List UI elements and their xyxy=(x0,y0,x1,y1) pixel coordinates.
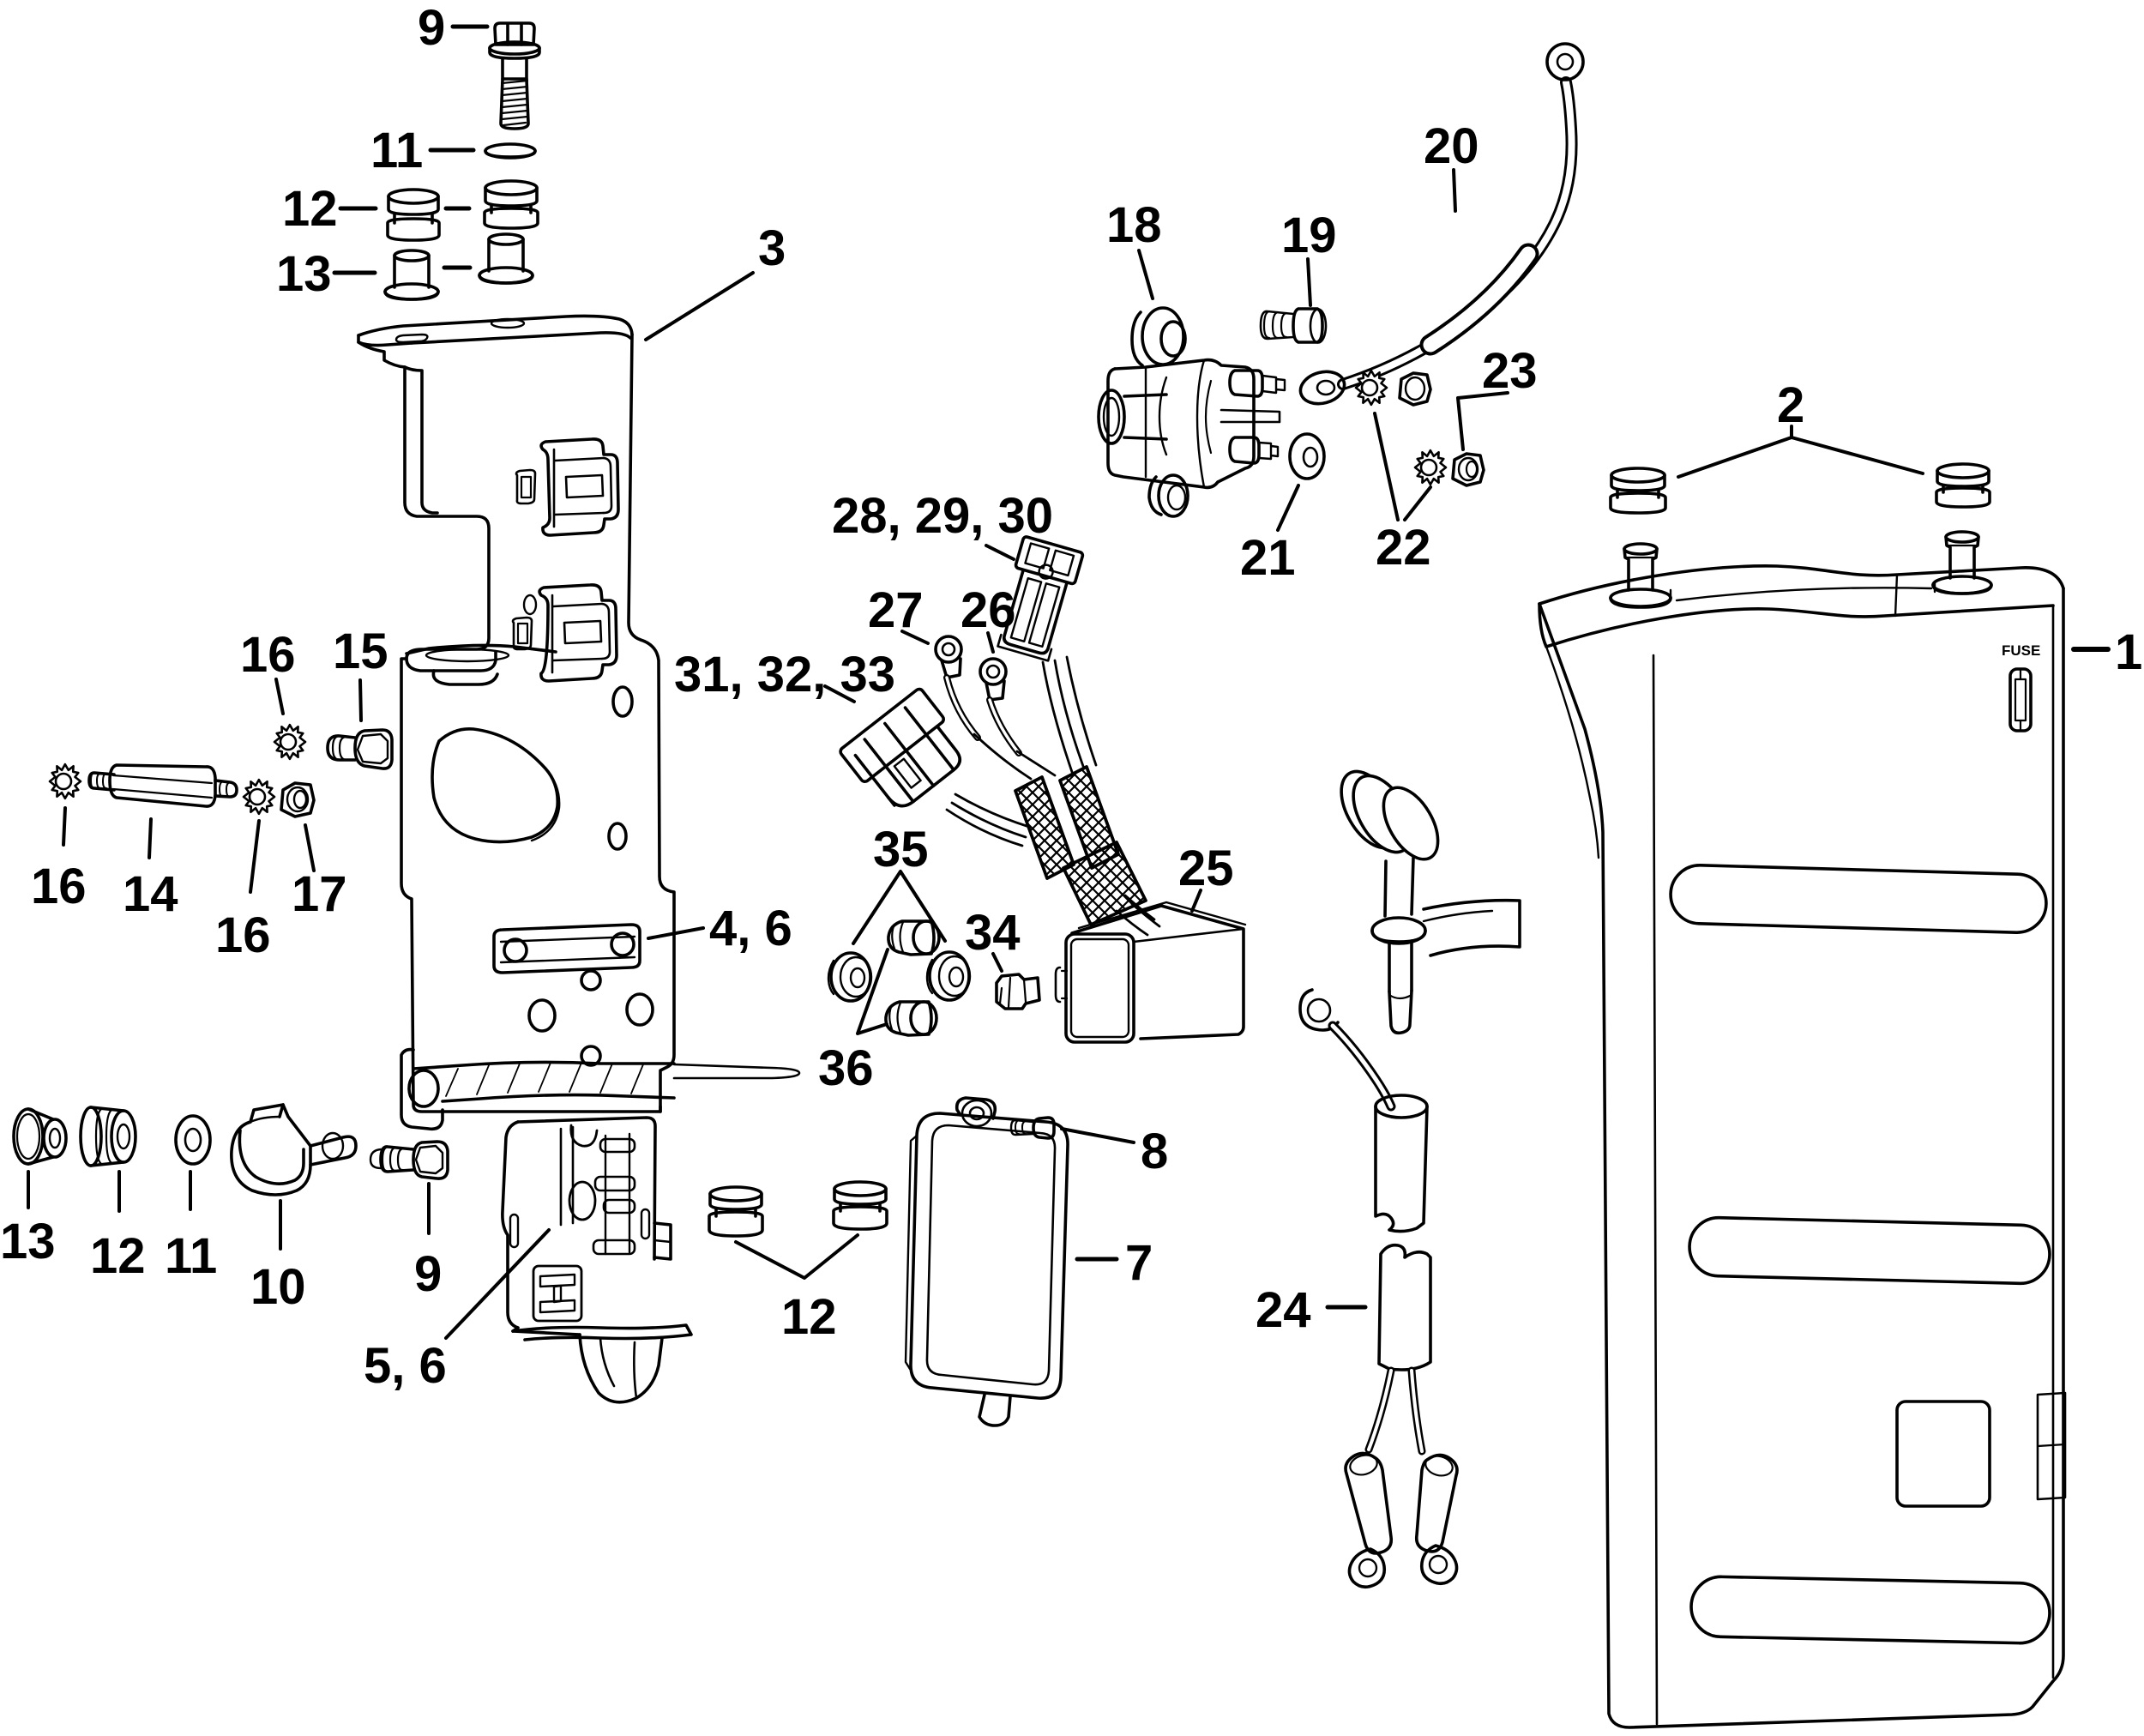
svg-text:17: 17 xyxy=(292,866,347,922)
svg-text:16: 16 xyxy=(215,907,271,963)
svg-text:20: 20 xyxy=(1424,118,1479,174)
svg-text:22: 22 xyxy=(1376,520,1431,576)
svg-text:18: 18 xyxy=(1106,197,1162,253)
svg-text:3: 3 xyxy=(758,220,786,276)
svg-text:12: 12 xyxy=(90,1228,146,1284)
svg-text:24: 24 xyxy=(1256,1282,1311,1338)
svg-text:16: 16 xyxy=(240,627,296,683)
svg-text:7: 7 xyxy=(1125,1235,1153,1291)
svg-text:9: 9 xyxy=(418,0,445,56)
svg-text:11: 11 xyxy=(165,1228,217,1284)
svg-text:4, 6: 4, 6 xyxy=(709,901,792,956)
svg-text:21: 21 xyxy=(1240,530,1296,586)
svg-text:13: 13 xyxy=(276,246,332,302)
svg-text:13: 13 xyxy=(0,1214,56,1269)
svg-text:12: 12 xyxy=(781,1289,837,1345)
svg-text:15: 15 xyxy=(333,624,388,679)
svg-text:1: 1 xyxy=(2115,624,2142,680)
svg-text:14: 14 xyxy=(123,866,178,922)
svg-text:31, 32, 33: 31, 32, 33 xyxy=(674,647,895,702)
svg-text:10: 10 xyxy=(250,1259,306,1315)
svg-text:36: 36 xyxy=(818,1040,874,1096)
svg-text:23: 23 xyxy=(1482,343,1538,399)
svg-text:9: 9 xyxy=(414,1246,442,1302)
svg-text:19: 19 xyxy=(1281,208,1337,263)
svg-text:16: 16 xyxy=(31,859,87,914)
svg-text:FUSE: FUSE xyxy=(2002,642,2040,659)
svg-text:27: 27 xyxy=(868,582,924,638)
svg-text:8: 8 xyxy=(1141,1124,1168,1179)
svg-text:26: 26 xyxy=(961,582,1016,638)
svg-text:12: 12 xyxy=(282,181,338,237)
svg-text:25: 25 xyxy=(1178,841,1234,896)
svg-text:35: 35 xyxy=(873,822,929,877)
svg-text:28, 29, 30: 28, 29, 30 xyxy=(832,488,1053,544)
svg-text:11: 11 xyxy=(370,123,423,178)
svg-text:5, 6: 5, 6 xyxy=(364,1338,447,1394)
